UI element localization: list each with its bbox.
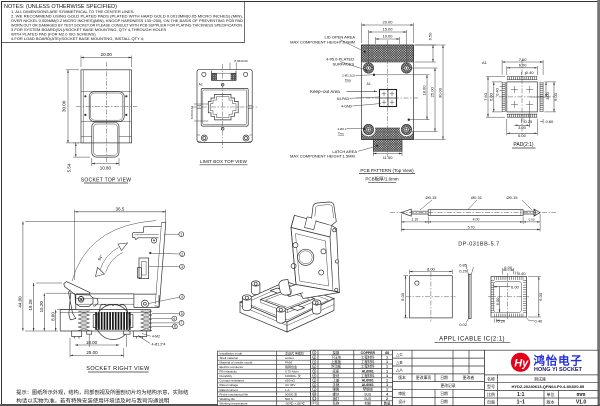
svg-text:PIN elasticity: PIN elasticity [220, 370, 238, 374]
svg-text:序号: 序号 [311, 401, 317, 405]
svg-text:COPPER: COPPER [361, 351, 376, 355]
svg-text:AC 36V: AC 36V [285, 383, 295, 387]
svg-text:弹簧: 弹簧 [333, 387, 340, 392]
svg-text:6: 6 [173, 317, 175, 321]
svg-text:Keep–out Area: Keep–out Area [310, 89, 340, 94]
svg-text:手柄: 手柄 [333, 382, 340, 387]
svg-text:0.25: 0.25 [525, 119, 534, 124]
svg-text:构请以实物为准。若有特殊安装使用环境请及时与我司沟通说明: 构请以实物为准。若有特殊安装使用环境请及时与我司沟通说明 [16, 397, 169, 404]
svg-text:4.FOR LOAD BOARD(ATE)/SOCKET B: 4.FOR LOAD BOARD(ATE)/SOCKET BASE MOUNTI… [11, 36, 144, 41]
svg-text:日期: 日期 [440, 375, 448, 380]
svg-text:Ø0.15: Ø0.15 [426, 195, 438, 200]
svg-text:DP-031BB-5.7: DP-031BB-5.7 [458, 242, 499, 248]
svg-text:Installation mode: Installation mode [220, 352, 243, 356]
svg-text:-50℃~+150℃: -50℃~+150℃ [285, 401, 305, 405]
svg-text:7.60: 7.60 [483, 92, 488, 101]
svg-text:3: 3 [181, 265, 183, 269]
svg-text:工程材料: 工程材料 [361, 364, 375, 369]
svg-text:1: 1 [386, 360, 388, 364]
svg-text:名称: 名称 [487, 375, 495, 381]
svg-text:100000+ 次: 100000+ 次 [285, 373, 301, 378]
svg-text:名称: 名称 [333, 400, 340, 405]
svg-text:材质: 材质 [364, 400, 371, 405]
svg-text:1: 1 [386, 388, 388, 392]
svg-text:0.20: 0.20 [498, 318, 507, 323]
svg-text:测试座: 测试座 [534, 375, 546, 381]
svg-text:socket: socket [285, 356, 294, 360]
svg-text:SOCKET TOP VIEW: SOCKET TOP VIEW [81, 177, 132, 183]
svg-text:上盖: 上盖 [333, 378, 340, 383]
svg-text:8.06±0.02: 8.06±0.02 [235, 59, 249, 63]
svg-text:4: 4 [181, 295, 183, 299]
svg-text:1:1: 1:1 [517, 392, 524, 398]
svg-text:4-Ø1.2*4: 4-Ø1.2*4 [152, 342, 166, 346]
svg-text:0.40: 0.40 [535, 318, 544, 323]
svg-text:比例: 比例 [487, 391, 495, 397]
svg-text:6.00: 6.00 [519, 63, 528, 68]
svg-text:15.00: 15.00 [382, 27, 393, 32]
svg-text:20.00: 20.00 [382, 20, 393, 25]
svg-text:Welding life: Welding life [220, 397, 236, 401]
svg-text:30.00: 30.00 [61, 100, 66, 112]
svg-text:螺丝: 螺丝 [333, 391, 340, 396]
svg-text:3.00: 3.00 [545, 91, 550, 100]
svg-text:数量: 数量 [384, 400, 391, 405]
svg-text:0.40: 0.40 [518, 271, 527, 276]
svg-text:25.00: 25.00 [430, 87, 435, 98]
svg-text:8.00: 8.00 [400, 292, 405, 301]
svg-text:7: 7 [181, 321, 183, 325]
svg-text:500 h: 500 h [285, 397, 293, 401]
svg-text:44.00: 44.00 [18, 296, 23, 308]
svg-text:8.00: 8.00 [427, 266, 436, 271]
svg-text:1: 1 [386, 356, 388, 360]
svg-text:6.00: 6.00 [489, 92, 494, 101]
svg-text:Rated voltage: Rated voltage [220, 383, 239, 387]
svg-text:1–1: 1–1 [517, 399, 526, 405]
svg-text:1: 1 [386, 379, 388, 383]
svg-text:浮动式 带锁扣: 浮动式 带锁扣 [285, 351, 304, 356]
svg-text:△A: △A [396, 368, 404, 373]
svg-text:50000 次: 50000 次 [285, 391, 297, 396]
svg-text:0.85: 0.85 [459, 262, 468, 267]
svg-text:工程材料: 工程材料 [361, 359, 375, 364]
svg-text:A1: A1 [367, 82, 371, 86]
svg-text:型号: 型号 [487, 383, 495, 389]
svg-text:探钢: 探钢 [333, 350, 340, 355]
svg-text:6.00: 6.00 [553, 92, 558, 101]
svg-text:10.80: 10.80 [100, 166, 112, 171]
svg-text:7.60: 7.60 [519, 57, 528, 62]
svg-text:64-PAD: 64-PAD [337, 97, 349, 101]
svg-text:更改记录: 更改记录 [440, 383, 455, 388]
svg-text:6.00: 6.00 [518, 133, 527, 138]
svg-text:0.40: 0.40 [526, 70, 535, 75]
svg-text:18.00: 18.00 [422, 85, 427, 96]
svg-text:0.60: 0.60 [546, 119, 555, 124]
svg-text:工程材料: 工程材料 [361, 355, 375, 360]
svg-text:Rated current: Rated current [220, 388, 238, 392]
svg-text:单位: 单位 [547, 391, 555, 397]
svg-text:1: 1 [386, 365, 388, 369]
svg-text:SOCKET RIGHT VIEW: SOCKET RIGHT VIEW [86, 366, 150, 372]
svg-text:Contact resistance: Contact resistance [220, 379, 245, 383]
svg-text:MAX COMPONENT HEIGHT:1.5MM: MAX COMPONENT HEIGHT:1.5MM [290, 154, 355, 159]
svg-text:Thru: Thru [338, 131, 345, 135]
svg-text:页面: 页面 [487, 399, 495, 404]
svg-text:36.5: 36.5 [116, 207, 125, 212]
svg-text:工程材料: 工程材料 [361, 373, 375, 378]
svg-text:0.40: 0.40 [495, 87, 500, 96]
svg-text:10: 10 [313, 392, 317, 396]
svg-text:6.00: 6.00 [504, 265, 513, 270]
svg-text:锐铜合金: 锐铜合金 [285, 364, 297, 369]
svg-text:Material of needle mould: Material of needle mould [220, 361, 253, 365]
svg-text:68: 68 [385, 351, 389, 355]
svg-text:1: 1 [180, 233, 182, 237]
svg-text:1: 1 [386, 369, 388, 373]
svg-text:日期: 日期 [440, 391, 448, 396]
svg-text:11.50: 11.50 [383, 155, 393, 160]
svg-text:PA66: PA66 [285, 361, 292, 365]
svg-text:PAD(2:1): PAD(2:1) [513, 142, 534, 148]
svg-text:11: 11 [313, 397, 316, 401]
svg-text:AL6061: AL6061 [362, 379, 374, 383]
svg-text:20.00: 20.00 [101, 52, 113, 57]
svg-text:6.00: 6.00 [495, 297, 500, 306]
svg-text:4-M2: 4-M2 [152, 335, 160, 339]
svg-text:0.75 N/pin: 0.75 N/pin [285, 370, 299, 374]
svg-text:上盖板: 上盖板 [331, 359, 342, 364]
svg-text:底座: 底座 [333, 368, 340, 373]
svg-text:琴钢线: 琴钢线 [363, 387, 374, 392]
svg-text:Durability: Durability [220, 374, 233, 378]
svg-text:SUS: SUS [364, 397, 372, 401]
svg-text:0.20: 0.20 [459, 269, 468, 274]
svg-text:垫块: 垫块 [333, 373, 340, 378]
svg-text:2: 2 [386, 397, 388, 401]
svg-text:APPL ICABLE IC(2:1): APPL ICABLE IC(2:1) [439, 336, 505, 342]
svg-text:6.00: 6.00 [538, 292, 543, 301]
svg-text:1 A: 1 A [285, 388, 289, 392]
svg-text:HYDZ-20240613-QFN64-P0.4-8X8X0: HYDZ-20240613-QFN64-P0.4-8X8X0.85 [511, 384, 584, 389]
svg-text:2: 2 [181, 252, 183, 256]
svg-text:5.70: 5.70 [468, 225, 475, 229]
svg-text:8: 8 [174, 325, 176, 329]
svg-text:Probe mechanical life: Probe mechanical life [220, 392, 249, 396]
svg-text:A1: A1 [199, 83, 203, 87]
svg-text:mm: mm [577, 392, 586, 398]
svg-text:≤50mΩ: ≤50mΩ [285, 379, 295, 383]
svg-text:AL6061: AL6061 [362, 369, 374, 373]
svg-text:25.00: 25.00 [86, 350, 98, 355]
svg-text:4-GND: 4-GND [341, 105, 352, 109]
svg-text:SURFACES: SURFACES [332, 61, 354, 66]
svg-text:V1.0: V1.0 [576, 399, 587, 405]
svg-text:0.02: 0.02 [459, 322, 468, 327]
svg-text:Working temperature: Working temperature [220, 401, 248, 405]
svg-text:LIMIT BOX TOP VIEW: LIMIT BOX TOP VIEW [200, 159, 248, 164]
svg-text:浮动板: 浮动板 [331, 364, 342, 369]
svg-text:A1: A1 [482, 60, 488, 65]
svg-text:Ø0.31: Ø0.31 [471, 195, 483, 200]
svg-text:更改事项: 更改事项 [416, 375, 431, 380]
svg-text:Ø0.15: Ø0.15 [507, 195, 519, 200]
svg-text:SUS: SUS [364, 392, 372, 396]
svg-text:10.00: 10.00 [382, 34, 393, 39]
svg-text:销钉: 销钉 [333, 396, 340, 401]
svg-text:△C: △C [396, 352, 404, 357]
svg-text:0.60: 0.60 [529, 218, 535, 222]
svg-text:1: 1 [386, 374, 388, 378]
svg-text:30.00: 30.00 [438, 87, 443, 98]
svg-text:4.00: 4.00 [473, 218, 480, 222]
svg-text:△B: △B [396, 360, 403, 365]
svg-text:Shell material: Shell material [220, 356, 239, 360]
svg-text:1: 1 [386, 383, 388, 387]
svg-text:PCB板厚/1.6mm: PCB板厚/1.6mm [365, 176, 399, 183]
svg-text:HONG YI SOCKET: HONG YI SOCKET [534, 367, 583, 373]
svg-text:版本: 版本 [547, 398, 555, 404]
svg-text:5: 5 [181, 312, 183, 316]
svg-text:6.50: 6.50 [428, 32, 433, 41]
svg-text:Hy: Hy [514, 358, 529, 370]
svg-text:下压块: 下压块 [331, 355, 342, 360]
svg-text:Thru: Thru [345, 78, 352, 82]
svg-text:6.00: 6.00 [511, 284, 520, 289]
svg-text:PCB PATTERN (Top View): PCB PATTERN (Top View) [360, 168, 414, 173]
svg-text:3.00: 3.00 [518, 125, 527, 130]
svg-text:AL6061: AL6061 [362, 383, 374, 387]
svg-text:1.10: 1.10 [411, 218, 418, 222]
svg-text:15.20: 15.20 [39, 301, 44, 313]
svg-text:更改者: 更改者 [463, 375, 475, 380]
svg-text:5.54: 5.54 [67, 163, 72, 172]
svg-text:Electric conductor: Electric conductor [220, 365, 244, 369]
svg-text:8.60: 8.60 [50, 312, 55, 321]
svg-text:日期: 日期 [440, 399, 448, 404]
svg-text:4-Ø2.2: 4-Ø2.2 [337, 127, 347, 131]
svg-text:设计: 设计 [398, 399, 406, 404]
svg-text:提示：图纸所示外观，结构，局部剖视及所圈剖切片均为结构示意，: 提示：图纸所示外观，结构，局部剖视及所圈剖切片均为结构示意，实际结 [16, 389, 188, 396]
svg-text:19.28: 19.28 [28, 299, 33, 311]
svg-text:4: 4 [386, 392, 388, 396]
svg-text:版本: 版本 [398, 375, 406, 380]
svg-text:8.06±0.02: 8.06±0.02 [190, 106, 194, 120]
svg-text:审批: 审批 [398, 391, 406, 396]
svg-text:18.00: 18.00 [86, 340, 98, 345]
svg-text:鸿怡电子: 鸿怡电子 [534, 353, 583, 367]
